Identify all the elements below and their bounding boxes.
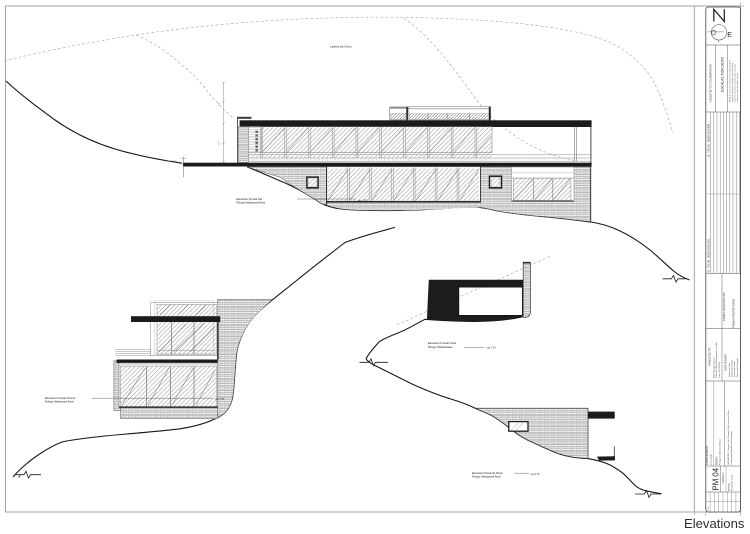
svg-text:Aldo Moraga Herrera: Aldo Moraga Herrera <box>713 357 716 378</box>
svg-text:- Elevacion Oriente: - Elevacion Oriente <box>731 359 734 378</box>
svg-text:Noviembre 2010: Noviembre 2010 <box>731 474 734 491</box>
svg-text:2.80: 2.80 <box>219 103 221 106</box>
svg-text:Refugio Habitacional Raura: Refugio Habitacional Raura <box>718 437 721 465</box>
svg-text:- Elevacion Sur: - Elevacion Sur <box>728 363 731 378</box>
svg-text:Elevacion Frontal Norte: Elevacion Frontal Norte <box>428 341 457 345</box>
svg-text:contraria. cotas de nivel en m: contraria. cotas de nivel en metros <box>736 73 739 102</box>
svg-text:Refugio Habitacional Rural: Refugio Habitacional Rural <box>237 202 266 205</box>
svg-text:ARQUITECTO COLABORADOR:: ARQUITECTO COLABORADOR: <box>709 63 713 102</box>
svg-text:LAMINA N°: LAMINA N° <box>722 472 725 484</box>
svg-text:Elevacion Frontal Sur: Elevacion Frontal Sur <box>237 197 263 201</box>
svg-text:Refugio Habitacional Rural: Refugio Habitacional Rural <box>45 401 74 404</box>
svg-text:condominio Republica Ecuatoria: condominio Republica Ecuatoriana <box>730 430 733 465</box>
svg-text:Elevacion Poniente Norte: Elevacion Poniente Norte <box>472 471 503 475</box>
svg-text:3.40: 3.40 <box>219 142 221 145</box>
svg-text:PM 04: PM 04 <box>711 467 720 490</box>
svg-text:- Elevacion Norte: - Elevacion Norte <box>733 360 736 378</box>
svg-text:fono: 56 032256: fono: 56 032256 <box>719 361 721 378</box>
svg-text:cota terreno: cota terreno <box>167 160 177 163</box>
svg-text:Refugio Habitacional Rural: Refugio Habitacional Rural <box>472 476 501 479</box>
svg-text:Calle 84 CASILLA valparaiso La: Calle 84 CASILLA valparaiso La Villa <box>715 341 718 378</box>
svg-text:UBICACIÓN: Camino 2 del Countr: UBICACIÓN: Camino 2 del Country Club Sec… <box>727 410 730 465</box>
svg-text:esc 1:75: esc 1:75 <box>358 199 368 202</box>
svg-text:CONTENIDO:: CONTENIDO: <box>724 353 728 371</box>
svg-text:ARQUITECTO:: ARQUITECTO: <box>708 347 712 366</box>
svg-text:FECHA: FECHA <box>728 483 731 491</box>
svg-text:esc 1:75: esc 1:75 <box>487 346 497 349</box>
svg-text:N° PL: N° PL <box>708 506 710 511</box>
svg-text:PROPIETARIO:: PROPIETARIO: <box>705 445 709 465</box>
svg-text:- Elevacion Poniente: - Elevacion Poniente <box>736 357 739 378</box>
svg-text:esc 1:75: esc 1:75 <box>531 473 541 476</box>
svg-text:N° FECHA MODIFICACION: N° FECHA MODIFICACION <box>708 124 711 157</box>
svg-text:Refugio Habitacionales: Refugio Habitacionales <box>428 346 453 349</box>
svg-text:E: E <box>727 32 732 39</box>
svg-text:inmaculada: inmaculada <box>710 453 712 465</box>
svg-text:FIRMA PROPIETARIO:: FIRMA PROPIETARIO: <box>732 298 736 328</box>
svg-text:Ladera de Cerro: Ladera de Cerro <box>330 45 352 49</box>
svg-text:N° FECHA MODIFICACION: N° FECHA MODIFICACION <box>708 239 711 272</box>
svg-text:Elevacion Frontal Oriente: Elevacion Frontal Oriente <box>45 396 76 400</box>
svg-text:ESCALAS INDICADAS: ESCALAS INDICADAS <box>721 56 725 92</box>
svg-text:OBRA:: OBRA: <box>714 456 718 465</box>
svg-text:FIRMA ARQUITECTO:: FIRMA ARQUITECTO: <box>722 292 726 321</box>
svg-text:esc 1:75: esc 1:75 <box>215 398 225 401</box>
